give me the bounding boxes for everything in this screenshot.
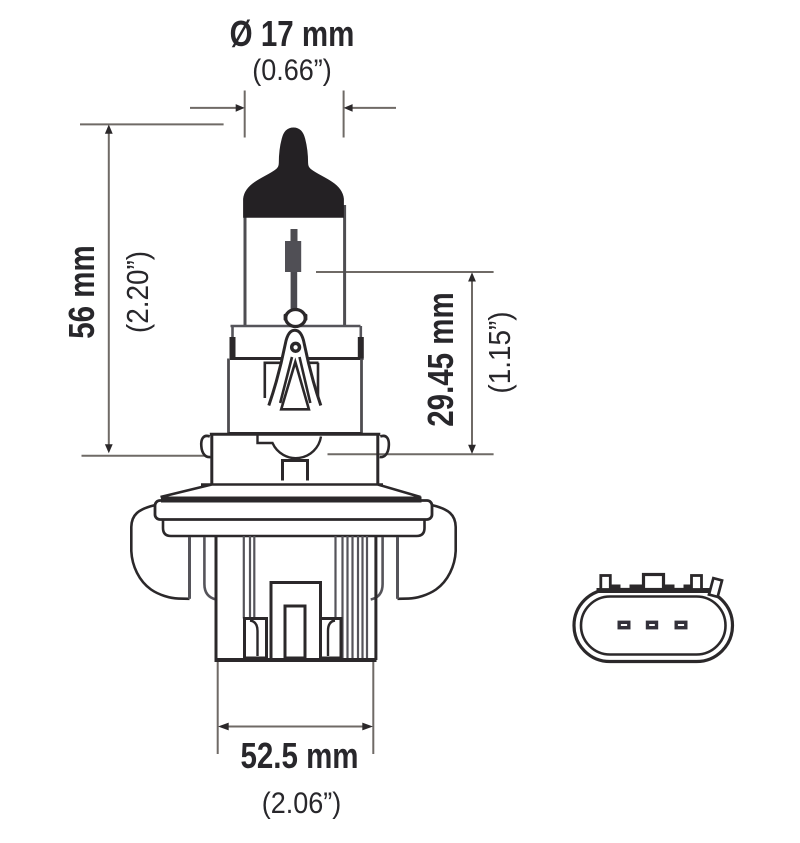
svg-text:56 mm: 56 mm	[61, 245, 101, 338]
svg-text:(0.66”): (0.66”)	[252, 54, 331, 88]
svg-text:Ø 17 mm: Ø 17 mm	[230, 13, 355, 53]
svg-text:52.5 mm: 52.5 mm	[240, 735, 358, 775]
svg-text:(2.06”): (2.06”)	[262, 787, 341, 821]
svg-text:(1.15”): (1.15”)	[483, 311, 518, 393]
svg-text:(2.20”): (2.20”)	[121, 251, 156, 333]
svg-text:29.45 mm: 29.45 mm	[420, 292, 460, 427]
